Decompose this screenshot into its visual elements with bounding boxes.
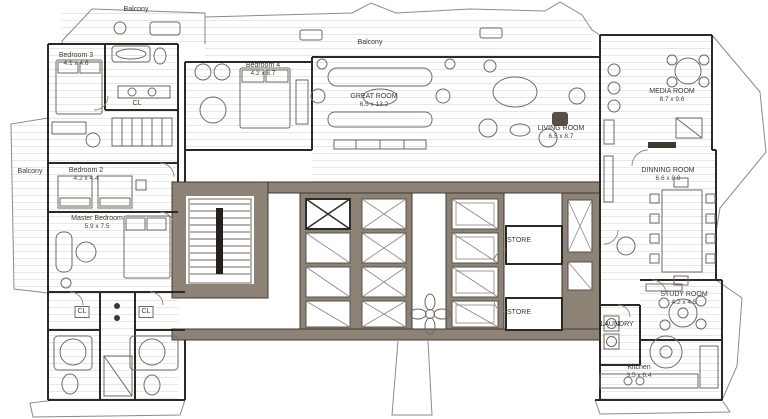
lobby-flower-motif: [410, 294, 450, 334]
core-layer: [172, 182, 600, 340]
floor-plan: Balcony Balcony Balcony Bedroom 3 4.1 x …: [0, 0, 768, 419]
store-room-top: [506, 226, 562, 264]
core-top-wall: [268, 182, 600, 193]
floor-plan-drawing: [0, 0, 768, 419]
store-room-bottom: [506, 298, 562, 330]
